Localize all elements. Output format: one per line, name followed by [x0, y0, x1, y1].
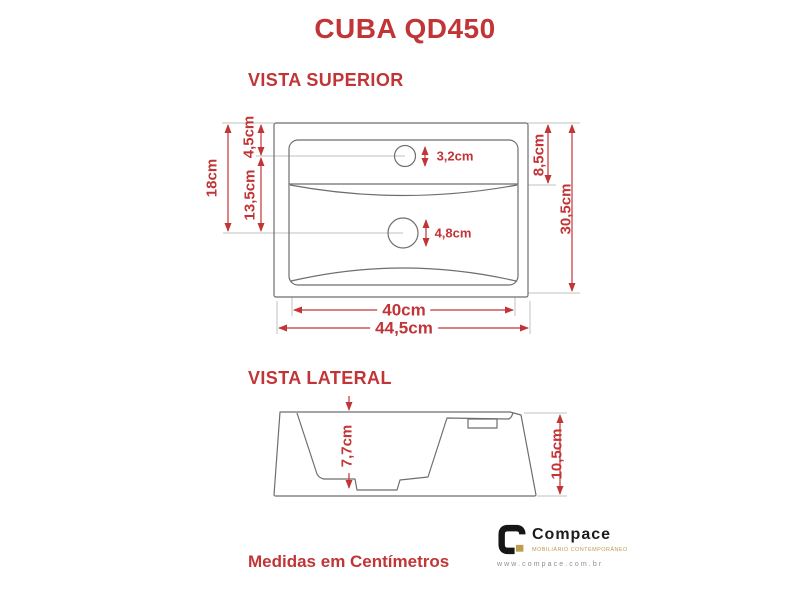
logo-name: Compace [532, 526, 628, 544]
logo-tagline: MOBILIÁRIO CONTEMPORÂNEO [532, 547, 628, 553]
basin-back-curve [290, 185, 517, 196]
logo-website: www.compace.com.br [497, 561, 615, 568]
page-title: CUBA QD450 [0, 13, 810, 45]
side-overflow-notch [468, 419, 497, 428]
side-view: 7,7cm 10,5cm [240, 395, 590, 510]
footer-note: Medidas em Centímetros [248, 552, 449, 572]
dim-label-10-5cm: 10,5cm [550, 429, 565, 480]
dim-label-13-5cm: 13,5cm [243, 170, 258, 221]
compace-logo: Compace MOBILIÁRIO CONTEMPORÂNEO www.com… [497, 524, 615, 578]
dim-label-30-5cm: 30,5cm [559, 184, 574, 235]
section-title-superior: VISTA SUPERIOR [248, 70, 404, 91]
dim-label-40cm: 40cm [377, 302, 430, 319]
top-view: 18cm 4,5cm 13,5cm 8,5cm 30,5cm 3,2cm 4,8… [195, 105, 595, 345]
dim-label-4-8cm: 4,8cm [435, 227, 472, 240]
dim-label-18cm: 18cm [205, 159, 220, 197]
side-view-drawing [240, 395, 590, 510]
outer-rim [274, 123, 528, 297]
diagram-page: CUBA QD450 VISTA SUPERIOR [0, 0, 810, 590]
side-bowl-profile [297, 413, 513, 490]
dim-label-7-7cm: 7,7cm [340, 425, 355, 468]
dim-label-3-2cm: 3,2cm [437, 150, 474, 163]
logo-gold-square [516, 545, 523, 552]
dim-label-4-5cm: 4,5cm [242, 116, 257, 159]
basin-front-curve [291, 268, 516, 281]
logo-mark-icon [497, 524, 527, 555]
section-title-lateral: VISTA LATERAL [248, 368, 392, 389]
basin-outline [289, 140, 518, 285]
dim-label-8-5cm: 8,5cm [532, 134, 547, 177]
dim-label-44-5cm: 44,5cm [370, 320, 438, 337]
